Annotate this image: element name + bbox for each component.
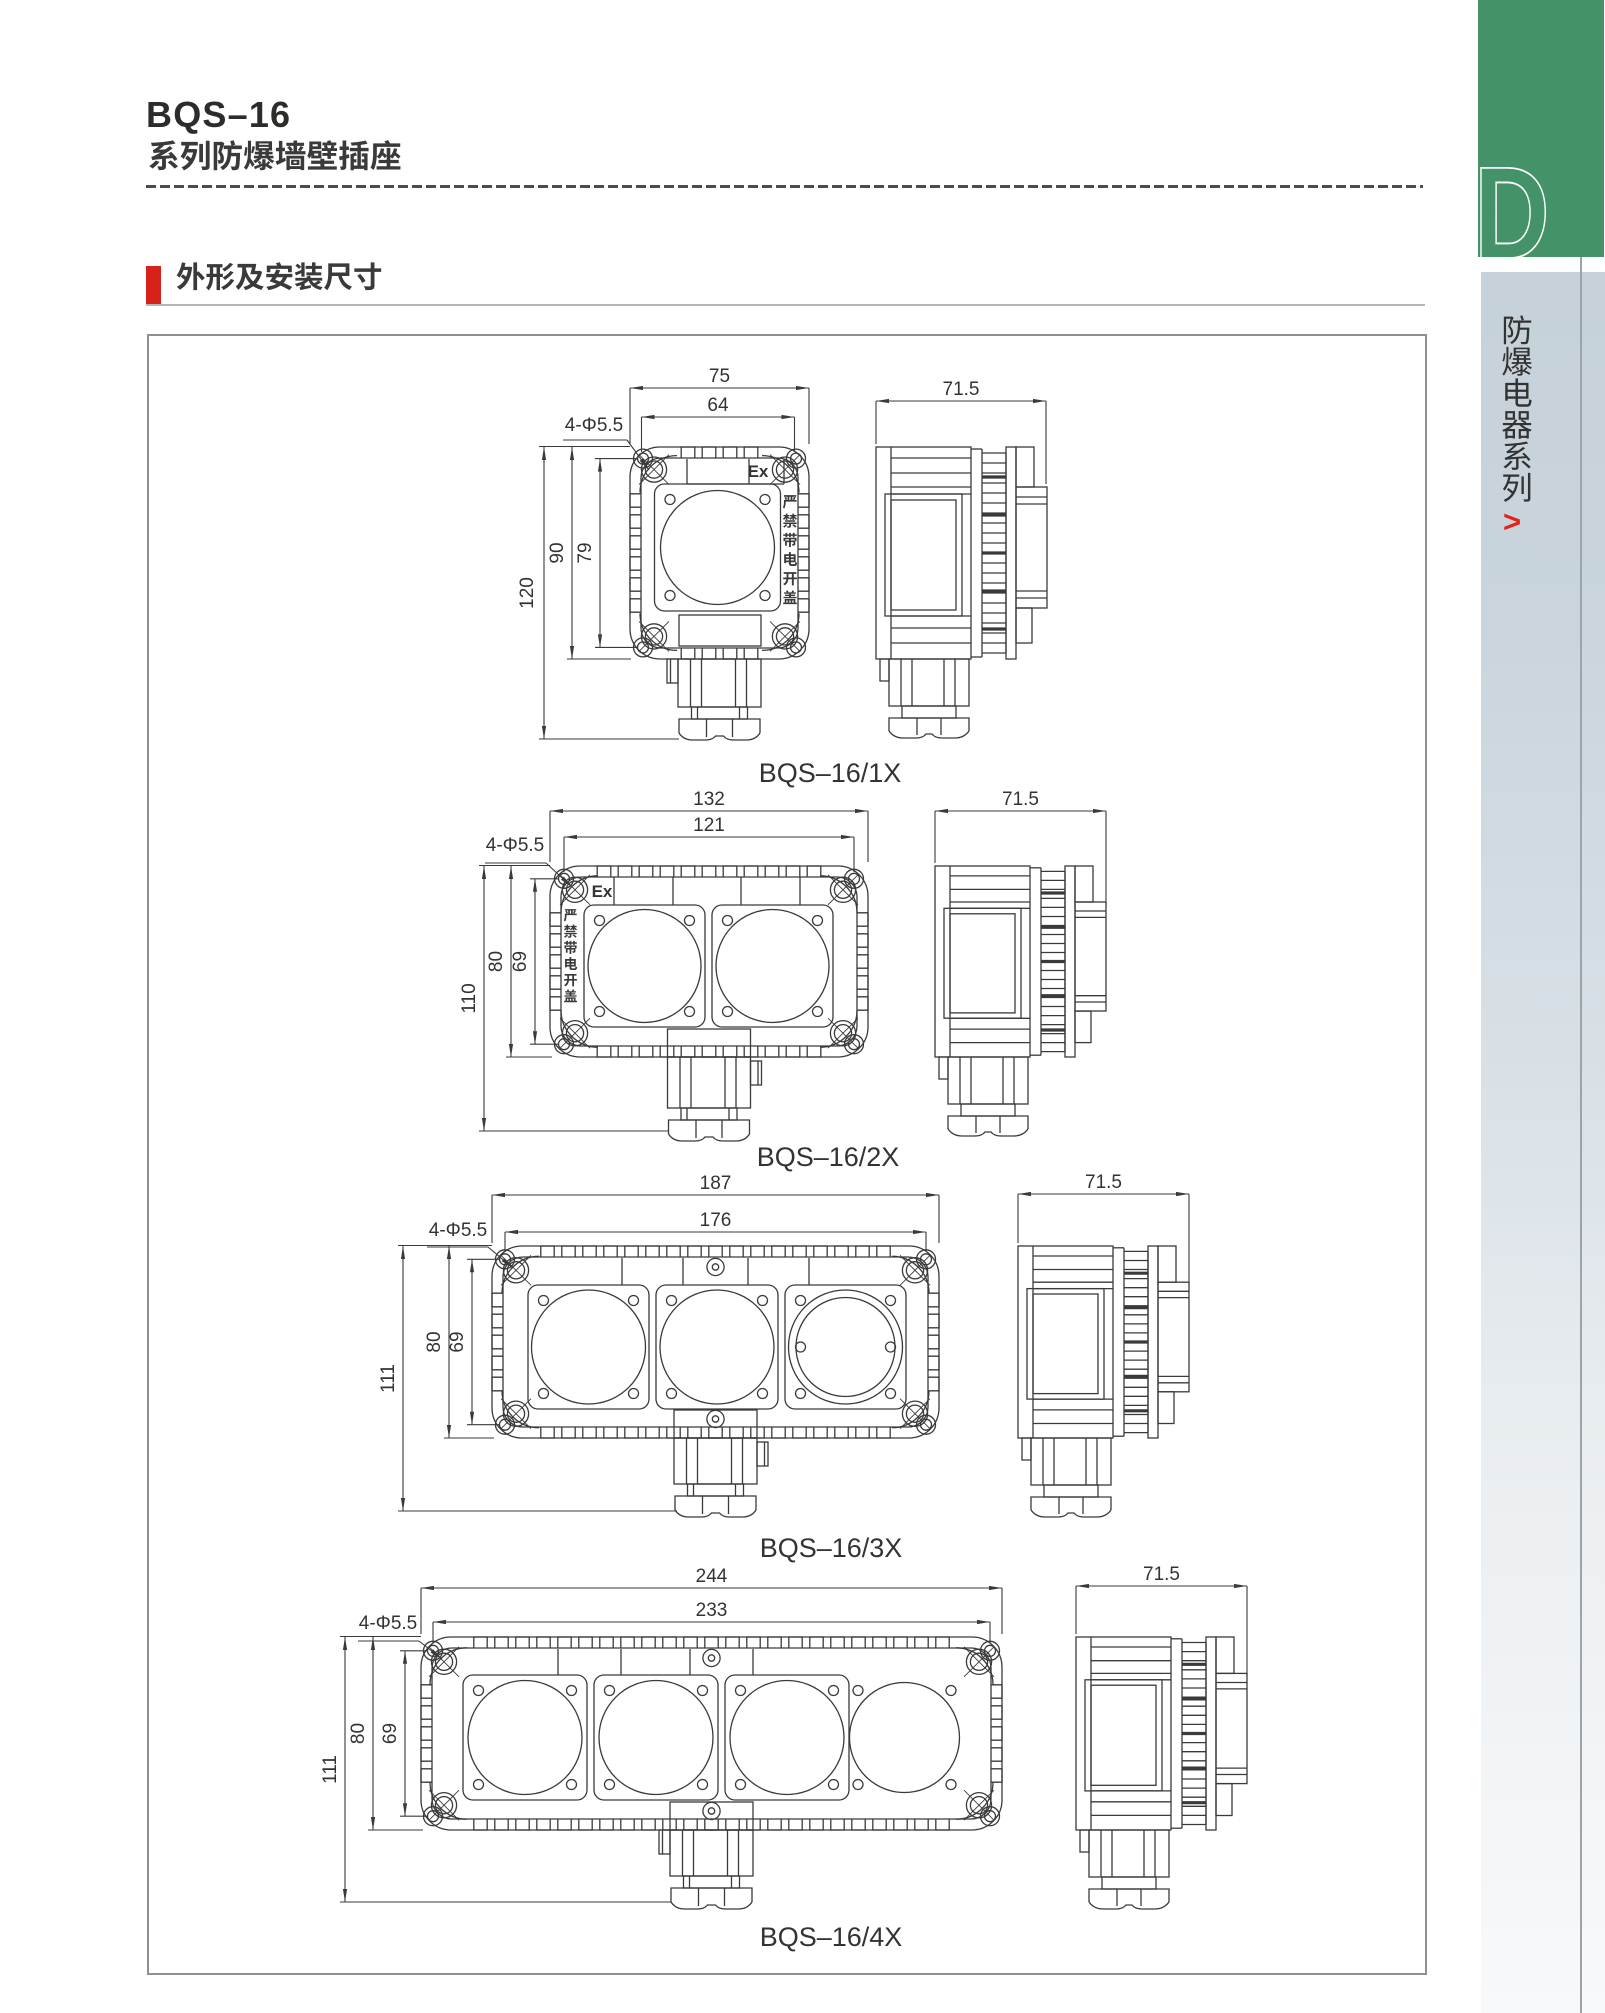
svg-text:111: 111 <box>320 1755 341 1784</box>
svg-text:BQS–16/4X: BQS–16/4X <box>760 1922 903 1952</box>
svg-text:90: 90 <box>547 542 568 563</box>
svg-text:4-Φ5.5: 4-Φ5.5 <box>359 1613 417 1634</box>
svg-text:BQS–16/1X: BQS–16/1X <box>759 758 902 788</box>
svg-text:69: 69 <box>380 1723 401 1744</box>
svg-text:69: 69 <box>510 951 531 972</box>
svg-text:132: 132 <box>693 789 725 810</box>
svg-text:71.5: 71.5 <box>943 379 980 400</box>
svg-text:80: 80 <box>486 951 507 972</box>
svg-text:71.5: 71.5 <box>1143 1564 1180 1585</box>
svg-text:71.5: 71.5 <box>1002 789 1039 810</box>
svg-text:244: 244 <box>696 1566 728 1587</box>
svg-text:121: 121 <box>693 815 725 836</box>
svg-text:BQS–16/3X: BQS–16/3X <box>760 1533 903 1563</box>
svg-text:69: 69 <box>447 1331 468 1352</box>
svg-text:233: 233 <box>696 1600 728 1621</box>
svg-text:4-Φ5.5: 4-Φ5.5 <box>565 415 623 436</box>
svg-text:Ex: Ex <box>748 462 769 481</box>
svg-text:120: 120 <box>517 577 538 609</box>
svg-text:4-Φ5.5: 4-Φ5.5 <box>429 1220 487 1241</box>
svg-text:71.5: 71.5 <box>1085 1172 1122 1193</box>
svg-text:111: 111 <box>378 1364 399 1393</box>
svg-text:4-Φ5.5: 4-Φ5.5 <box>486 835 544 856</box>
svg-text:187: 187 <box>700 1173 732 1194</box>
svg-text:110: 110 <box>459 983 480 1013</box>
svg-text:79: 79 <box>575 542 596 563</box>
svg-text:80: 80 <box>348 1723 369 1744</box>
svg-text:Ex: Ex <box>592 882 613 901</box>
svg-text:176: 176 <box>700 1210 732 1231</box>
svg-text:80: 80 <box>424 1331 445 1352</box>
svg-text:75: 75 <box>709 366 730 387</box>
svg-text:BQS–16/2X: BQS–16/2X <box>757 1142 900 1172</box>
svg-text:64: 64 <box>707 395 729 416</box>
